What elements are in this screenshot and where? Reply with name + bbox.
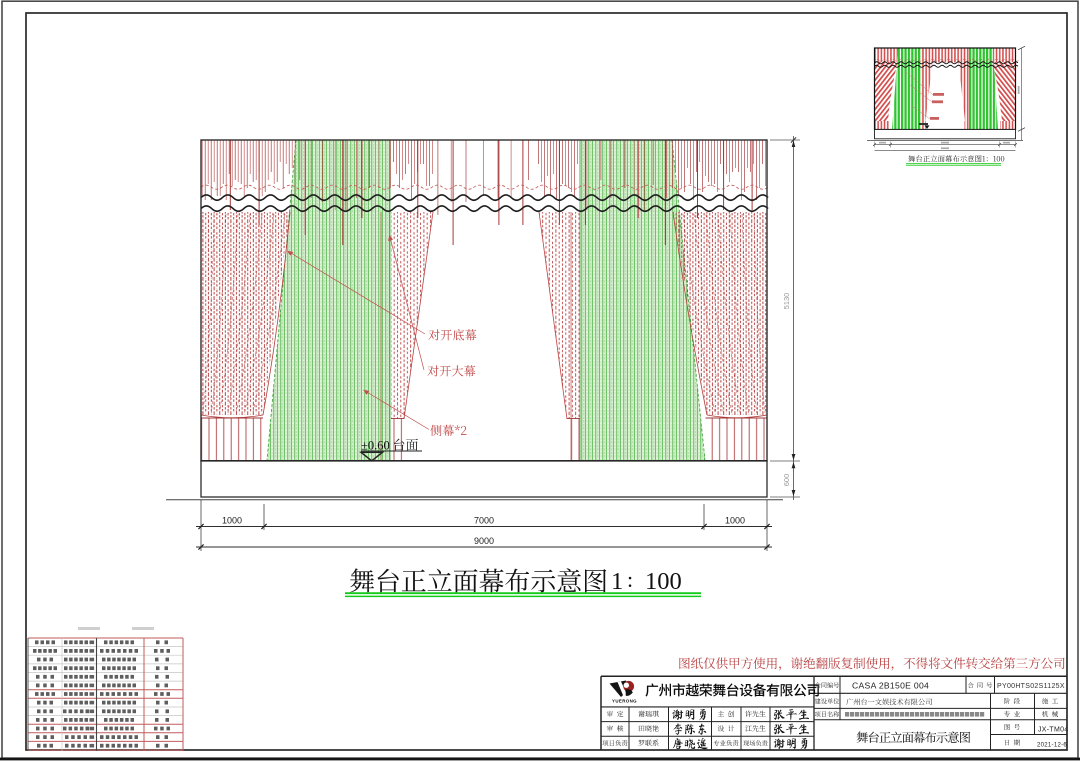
svg-text:PY00HTS02S1125X: PY00HTS02S1125X [997,683,1065,690]
svg-text:2021-12-6: 2021-12-6 [1037,742,1067,748]
svg-text:5130: 5130 [782,293,791,310]
svg-text:9000: 9000 [474,536,494,546]
svg-text:1: 1 [611,568,623,595]
svg-text:600: 600 [782,474,791,487]
svg-text::: : [627,567,633,592]
svg-text:7000: 7000 [474,516,494,526]
svg-text:100: 100 [645,568,682,595]
svg-text:±0.60: ±0.60 [361,439,390,453]
svg-text:YUERONG: YUERONG [612,699,637,704]
svg-text:CASA 2B150E 004: CASA 2B150E 004 [852,681,929,691]
svg-text:JX-TM04: JX-TM04 [1038,727,1069,734]
svg-text:1000: 1000 [222,516,242,526]
svg-text:1000: 1000 [725,516,745,526]
